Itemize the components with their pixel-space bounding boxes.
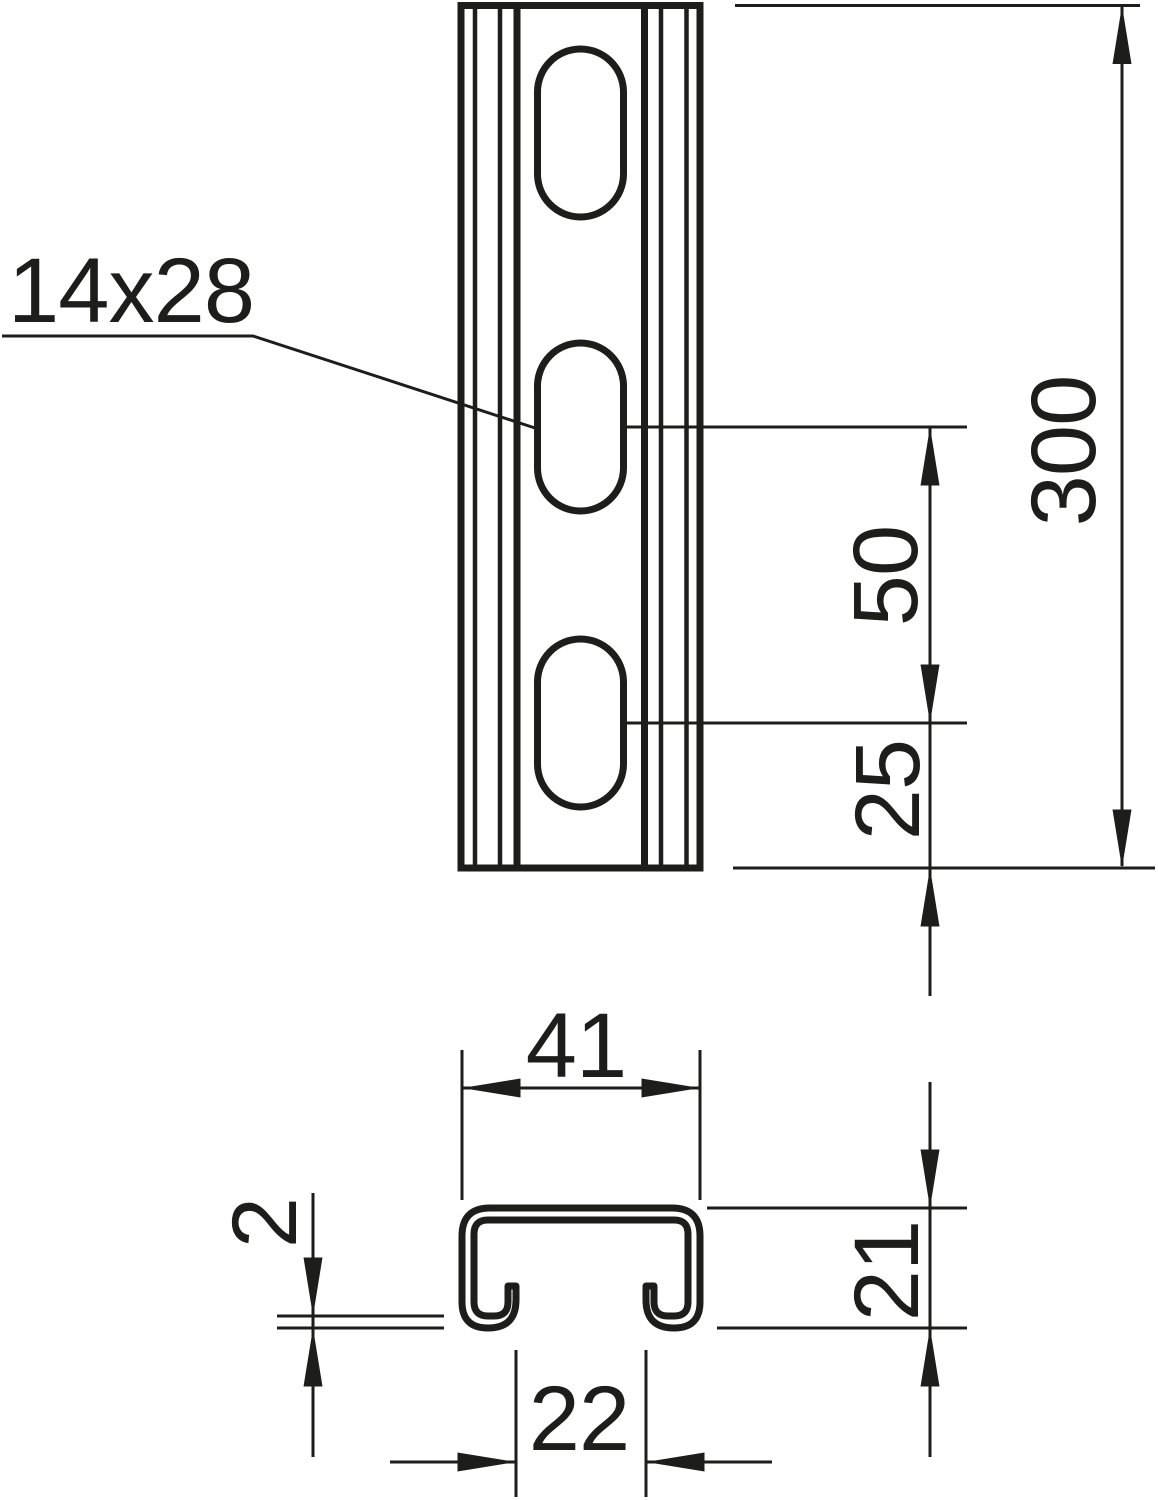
slot-hole-bottom xyxy=(538,639,624,807)
arrowhead-height-top xyxy=(921,1150,940,1209)
slot-callout-leader-line xyxy=(2,336,535,428)
arrowhead-height-bottom xyxy=(921,1328,940,1387)
arrowhead-opening-right xyxy=(646,1453,705,1472)
slot-hole-middle xyxy=(538,343,624,511)
profile-sheet-outline xyxy=(462,1208,700,1328)
arrowhead-length-bottom xyxy=(1113,810,1132,869)
arrowhead-opening-left xyxy=(458,1453,517,1472)
dimension-label-end-distance: 25 xyxy=(837,740,939,841)
arrowhead-pitch-top xyxy=(921,427,940,486)
technical-drawing-canvas: 14x28 300 50 25 41 xyxy=(0,0,1158,1500)
arrowhead-width-right xyxy=(642,1079,701,1098)
technical-drawing-page: 14x28 300 50 25 41 xyxy=(0,0,1158,1500)
front-view-rail xyxy=(461,6,700,869)
dimension-label-thickness: 2 xyxy=(214,1198,316,1248)
arrowhead-length-top xyxy=(1113,6,1132,65)
slot-callout-label: 14x28 xyxy=(8,240,254,342)
slot-callout: 14x28 xyxy=(2,240,535,428)
section-dimensions: 41 21 2 22 xyxy=(214,995,967,1497)
arrowhead-end-distance-bottom xyxy=(921,868,940,927)
arrowhead-thickness-bottom xyxy=(304,1328,323,1387)
dimension-label-opening: 22 xyxy=(529,1368,630,1470)
dimension-label-height: 21 xyxy=(836,1221,938,1322)
dimension-label-pitch: 50 xyxy=(835,526,937,627)
rail-outline xyxy=(461,6,700,869)
dimension-label-width: 41 xyxy=(526,995,627,1097)
section-view-profile xyxy=(462,1208,700,1328)
arrowhead-thickness-top xyxy=(304,1258,323,1317)
arrowhead-width-left xyxy=(462,1079,521,1098)
dimension-label-length: 300 xyxy=(1013,376,1115,527)
slot-hole-top xyxy=(538,49,624,217)
arrowhead-pitch-bottom xyxy=(921,665,940,724)
